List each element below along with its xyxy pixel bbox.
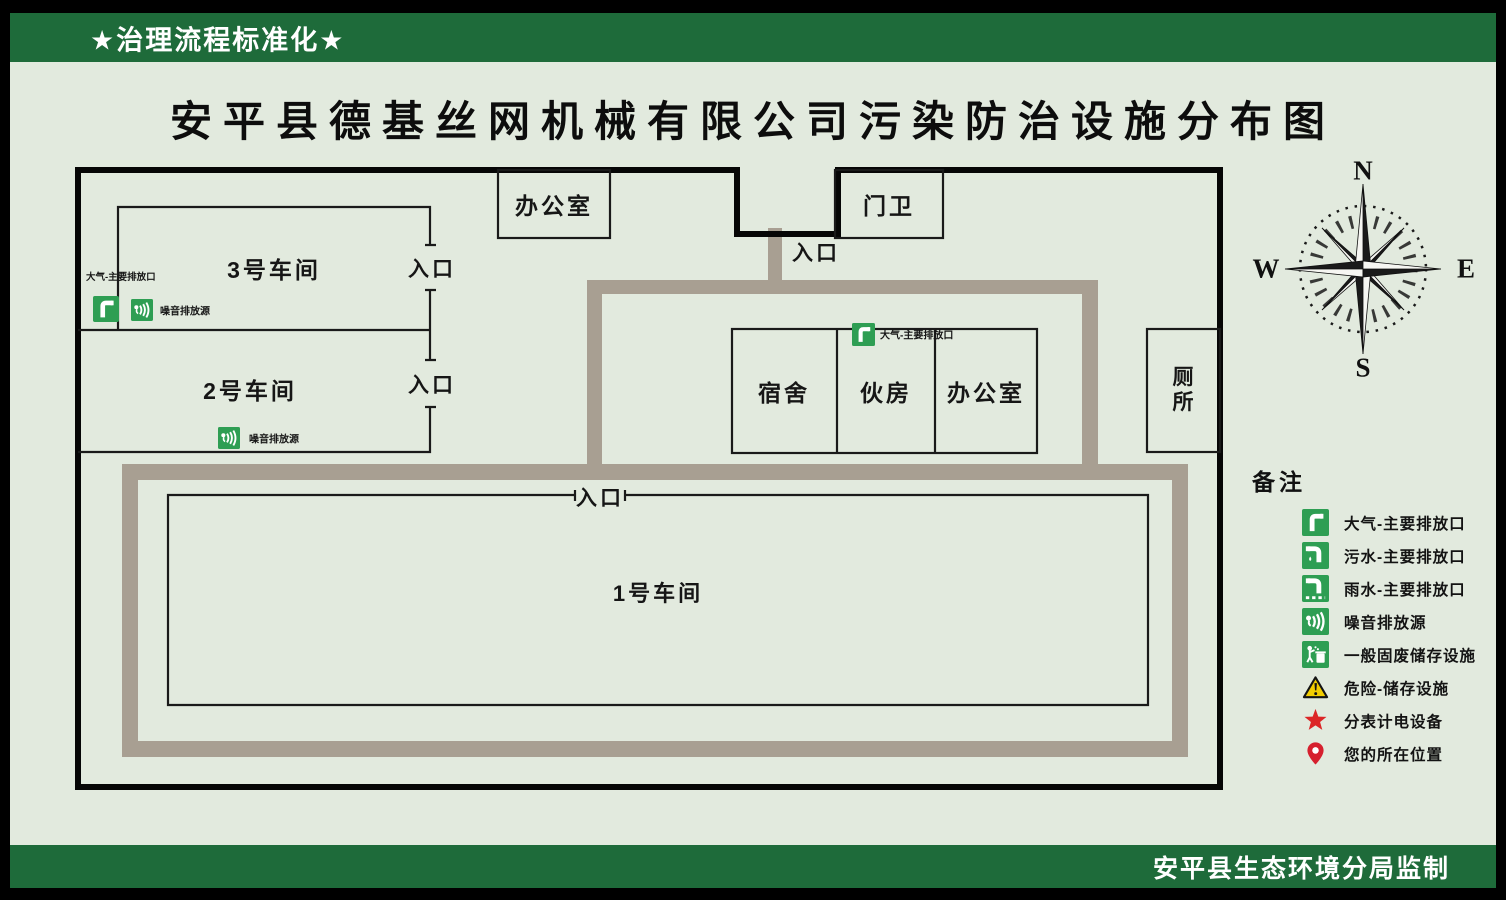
noise-source-icon — [218, 427, 240, 449]
gatehouse-label: 门卫 — [863, 187, 915, 221]
dormitory-label: 宿舍 — [758, 374, 810, 408]
kitchen-label: 伙房 — [860, 374, 912, 408]
legend-item: 大气-主要排放口 — [1252, 506, 1482, 539]
entrance-label-gate: 入口 — [792, 237, 840, 267]
office-top-label: 办公室 — [515, 187, 593, 221]
office-mid-label: 办公室 — [947, 374, 1025, 408]
air-outlet-icon — [1302, 509, 1329, 536]
poster: ★治理流程标准化★ 安平县生态环境分局监制 安平县德基丝网机械有限公司污染防治设… — [0, 0, 1506, 900]
workshop3-label: 3号车间 — [227, 251, 321, 285]
legend: 备注 大气-主要排放口 污水-主要排放口 雨水-主要排放口 噪音排放源 一般固废… — [1252, 463, 1482, 770]
compass-e-label: E — [1457, 254, 1475, 285]
legend-item-label: 您的所在位置 — [1344, 743, 1443, 765]
legend-item-label: 雨水-主要排放口 — [1344, 578, 1466, 600]
legend-item: 污水-主要排放口 — [1252, 539, 1482, 572]
compass-w-label: W — [1253, 254, 1280, 285]
your-location-icon — [1302, 740, 1329, 767]
air-outlet-icon — [852, 323, 875, 346]
noise-source-annotation: 噪音排放源 — [160, 303, 210, 318]
entrance-label-workshop1: 入口 — [576, 482, 624, 512]
legend-item: 雨水-主要排放口 — [1252, 572, 1482, 605]
air-outlet-annotation: 大气-主要排放口 — [880, 327, 953, 342]
road-network — [130, 228, 1180, 749]
legend-item-label: 分表计电设备 — [1344, 710, 1443, 732]
legend-item-label: 一般固废储存设施 — [1344, 644, 1476, 666]
air-outlet-icon — [93, 296, 119, 322]
rain-outlet-icon — [1302, 575, 1329, 602]
toilet-label: 厕所 — [1170, 365, 1196, 415]
entrance-label-workshop3: 入口 — [408, 253, 456, 283]
legend-item-label: 污水-主要排放口 — [1344, 545, 1466, 567]
legend-item-label: 大气-主要排放口 — [1344, 512, 1466, 534]
noise-source-icon — [131, 299, 153, 321]
compass-n-label: N — [1353, 156, 1373, 187]
legend-title: 备注 — [1252, 463, 1482, 497]
hazard-storage-icon — [1302, 674, 1329, 701]
solid-waste-icon — [1302, 641, 1329, 668]
legend-item: 您的所在位置 — [1252, 737, 1482, 770]
noise-source-annotation: 噪音排放源 — [249, 431, 299, 446]
noise-source-icon — [1302, 608, 1329, 635]
legend-item-label: 危险-储存设施 — [1344, 677, 1449, 699]
workshop2-label: 2号车间 — [203, 372, 297, 406]
air-outlet-annotation: 大气-主要排放口 — [86, 269, 156, 283]
legend-item: 噪音排放源 — [1252, 605, 1482, 638]
submeter-power-icon — [1302, 707, 1329, 734]
legend-item-label: 噪音排放源 — [1344, 611, 1427, 633]
legend-item: 危险-储存设施 — [1252, 671, 1482, 704]
entrance-label-workshop2: 入口 — [408, 369, 456, 399]
compass-s-label: S — [1355, 353, 1370, 384]
compass-rose — [1285, 184, 1441, 354]
legend-item: 分表计电设备 — [1252, 704, 1482, 737]
workshop1-label: 1号车间 — [613, 576, 703, 608]
legend-item: 一般固废储存设施 — [1252, 638, 1482, 671]
sewage-outlet-icon — [1302, 542, 1329, 569]
